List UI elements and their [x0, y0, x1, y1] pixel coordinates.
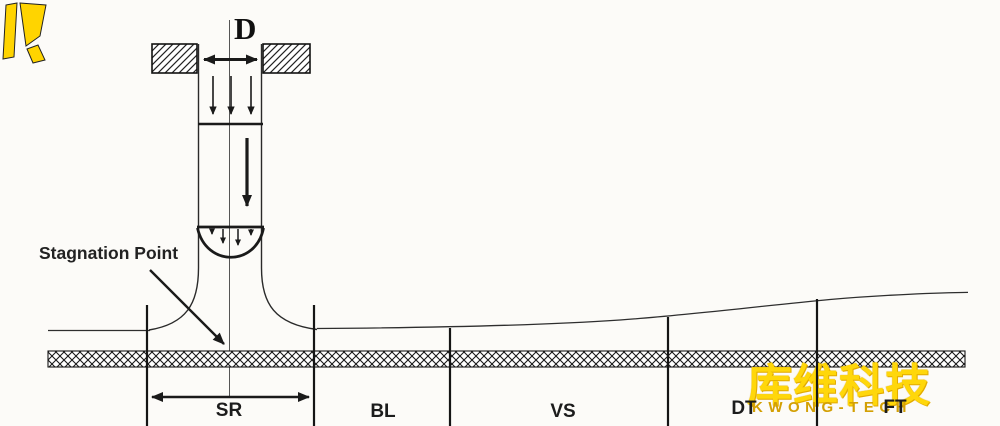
region-label-sr: SR — [199, 401, 259, 420]
region-label-vs: VS — [533, 402, 593, 421]
impinging-jet-diagram: 库维科技 KWONG-TECH D Stagnation Point SR BL… — [0, 0, 1000, 426]
region-label-ft: FT — [865, 398, 925, 417]
region-label-bl: BL — [353, 402, 413, 421]
region-dividers — [0, 0, 1000, 426]
stagnation-point-label: Stagnation Point — [39, 245, 178, 263]
region-label-dt: DT — [714, 399, 774, 418]
nozzle-diameter-label: D — [234, 13, 256, 44]
